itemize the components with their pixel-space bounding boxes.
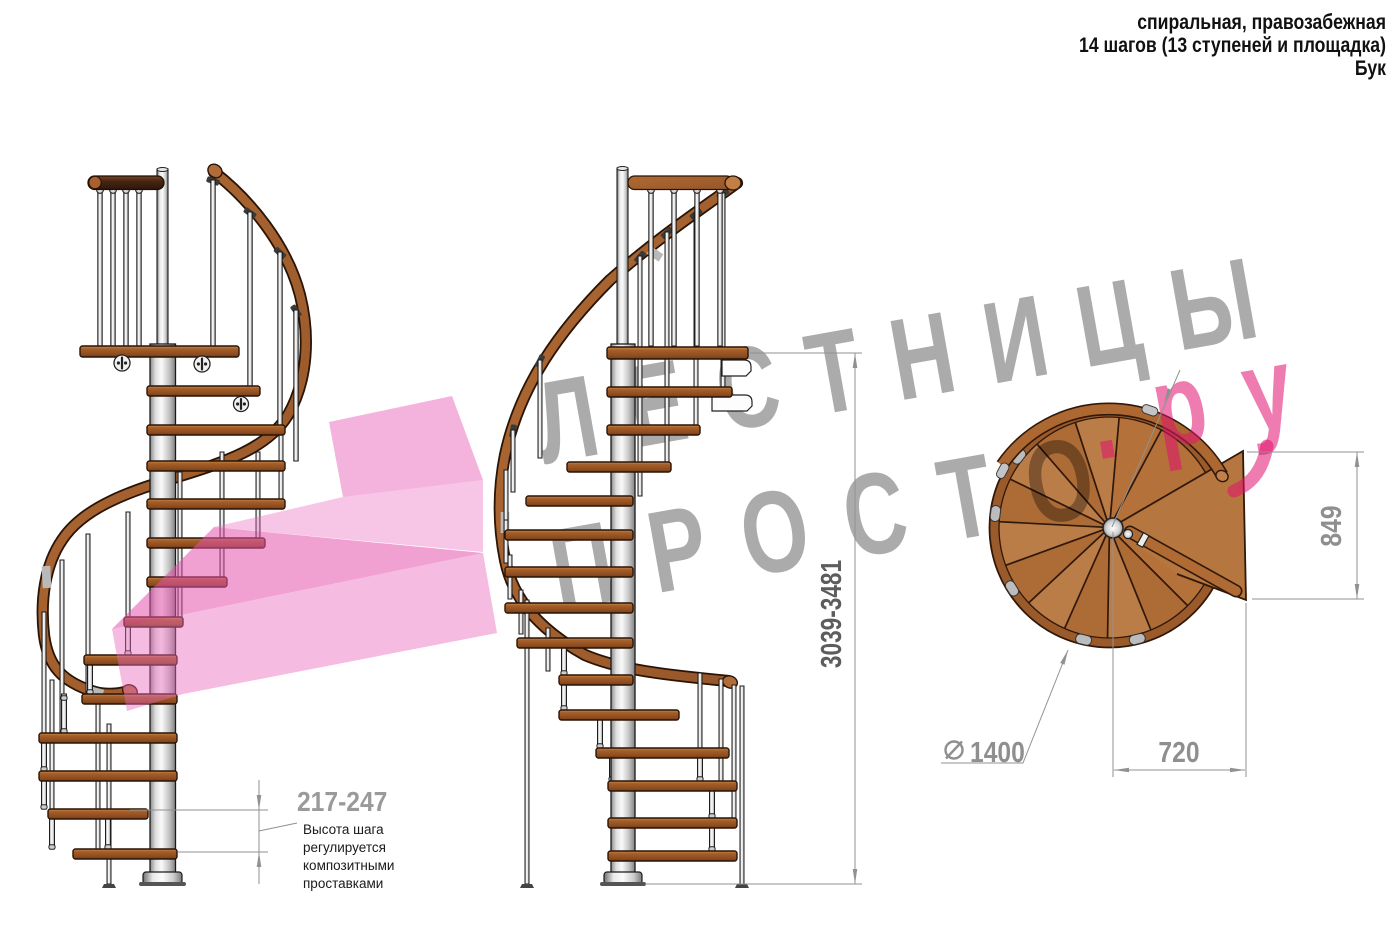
svg-text:регулируется: регулируется [303, 840, 386, 855]
svg-text:849: 849 [1315, 505, 1347, 546]
svg-text:Бук: Бук [1355, 57, 1386, 81]
svg-text:217-247: 217-247 [297, 786, 387, 818]
svg-text:1400: 1400 [970, 736, 1025, 768]
svg-text:проставками: проставками [303, 876, 383, 891]
svg-text:14 шагов (13 ступеней и площад: 14 шагов (13 ступеней и площадка) [1079, 34, 1386, 58]
svg-text:Высота шага: Высота шага [303, 822, 384, 837]
svg-text:720: 720 [1158, 736, 1199, 768]
svg-text:композитными: композитными [303, 858, 394, 873]
svg-text:спиральная, правозабежная: спиральная, правозабежная [1137, 11, 1386, 35]
svg-text:3039-3481: 3039-3481 [814, 560, 847, 668]
